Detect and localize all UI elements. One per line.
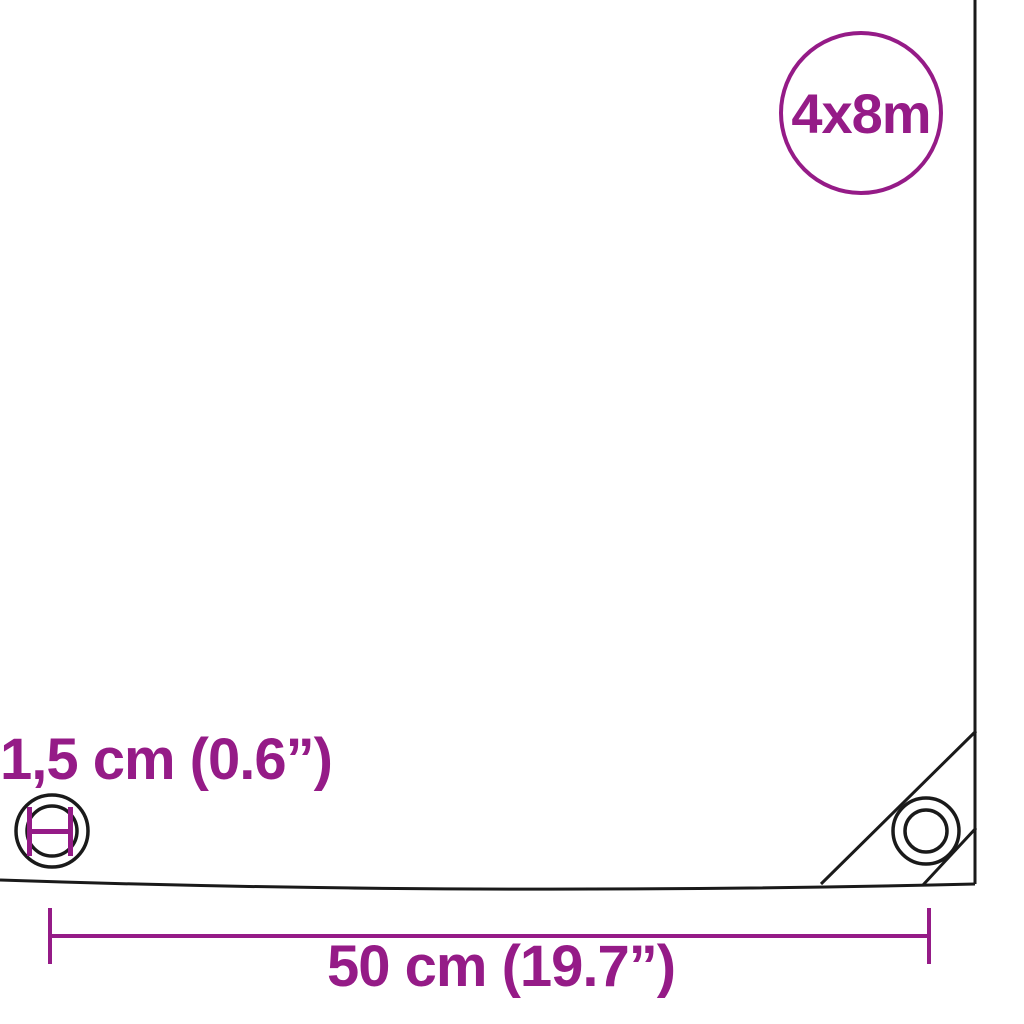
corner-reinforcement-seam: [821, 731, 976, 884]
eyelet-diameter-icon: [16, 795, 88, 867]
product-dimension-diagram: 4x8m 1,5 cm (0.6”) 50 cm (19.7”): [0, 0, 1024, 1024]
corner-grommet-outer-ring: [893, 798, 959, 864]
size-badge-label: 4x8m: [791, 81, 930, 146]
tarp-bottom-edge: [0, 880, 975, 889]
corner-grommet-icon: [893, 798, 959, 864]
spacing-dimension-label: 50 cm (19.7”): [327, 938, 675, 996]
corner-grommet-inner-ring: [905, 810, 947, 852]
eyelet-dimension-label: 1,5 cm (0.6”): [0, 731, 332, 789]
size-badge: 4x8m: [779, 31, 943, 195]
